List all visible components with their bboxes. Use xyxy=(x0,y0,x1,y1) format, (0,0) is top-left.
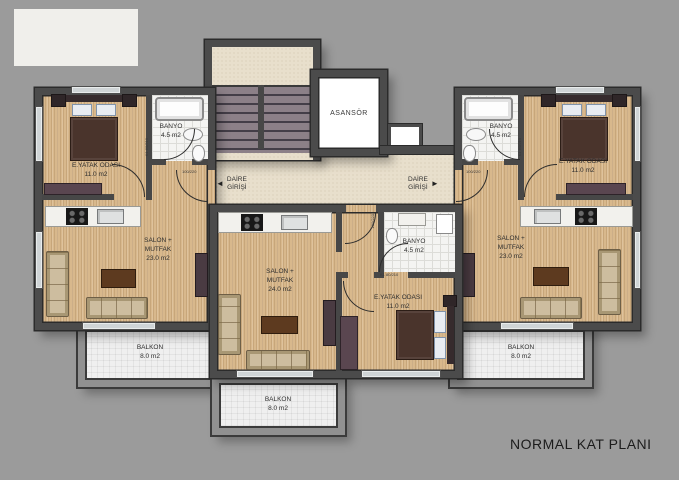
bath-sink xyxy=(466,128,486,141)
sofa xyxy=(218,294,241,355)
room-label-right-living: SALON +MUTFAK23.0 m2 xyxy=(497,235,525,261)
bed-pillow xyxy=(96,104,116,116)
bathtub xyxy=(464,97,513,121)
door-size-label: 100/220 xyxy=(466,169,480,174)
room-label-center-bedroom: E.YATAK ODASI11.0 m2 xyxy=(374,294,422,312)
balcony-door xyxy=(82,322,156,330)
room-label-center-living: SALON +MUTFAK24.0 m2 xyxy=(266,268,294,294)
center-entry-opening xyxy=(346,205,376,212)
bed-pillow xyxy=(72,104,92,116)
window xyxy=(71,86,121,94)
room-label-left-balcony: BALKON8.0 m2 xyxy=(137,344,163,362)
bed-pillow xyxy=(562,104,582,116)
room-label-left-bathroom: BANYO4.5 m2 xyxy=(160,123,183,141)
window xyxy=(361,370,441,378)
center-wall-seg-a xyxy=(336,272,348,278)
bed-blanket xyxy=(560,117,608,161)
center-vestibule-wall xyxy=(336,212,342,252)
elevator: ASANSÖR xyxy=(311,70,387,156)
toilet xyxy=(192,145,205,162)
stove xyxy=(241,214,263,231)
kitchen-sink xyxy=(534,209,561,224)
sofa xyxy=(46,251,69,317)
entrance-label-right: DAİREGİRİŞİ ► xyxy=(408,176,439,192)
dresser xyxy=(44,183,102,195)
window xyxy=(634,231,641,289)
right-bath-wall-a xyxy=(504,159,524,165)
nightstand xyxy=(123,95,136,106)
left-entry-opening xyxy=(208,170,215,204)
sofa xyxy=(246,350,310,370)
tv-unit xyxy=(195,253,208,297)
bed-headboard xyxy=(66,95,122,102)
nightstand xyxy=(52,95,65,106)
balcony-door xyxy=(500,322,574,330)
logo-placeholder xyxy=(14,9,138,66)
door-size-label: K1 80/210 xyxy=(144,138,149,156)
sofa xyxy=(520,297,582,319)
balcony-door xyxy=(236,370,314,378)
room-label-center-bathroom: BANYO4.5 m2 xyxy=(403,238,426,256)
sofa xyxy=(86,297,148,319)
hall-top-wall xyxy=(380,146,458,154)
coffee-table xyxy=(101,269,136,288)
bathtub xyxy=(155,97,204,121)
door-size-label: 100/220 xyxy=(182,169,196,174)
window xyxy=(555,86,605,94)
arrow-right-icon: ► xyxy=(431,179,439,189)
window xyxy=(35,106,43,162)
window xyxy=(634,106,641,162)
kitchen-counter xyxy=(218,212,332,233)
stair-divider xyxy=(258,85,264,149)
dresser xyxy=(566,183,626,195)
bed xyxy=(66,95,122,161)
tv-unit xyxy=(323,300,336,346)
sofa xyxy=(598,249,621,315)
kitchen-sink xyxy=(281,215,308,230)
door-size-label: K1 80/210 xyxy=(517,138,522,156)
bed-headboard xyxy=(556,95,612,102)
toilet xyxy=(463,145,476,162)
entrance-label-left: ◄ DAİREGİRİŞİ xyxy=(216,176,247,192)
shower xyxy=(436,214,453,234)
plan-title: NORMAL KAT PLANI xyxy=(510,436,652,452)
door-size-label: K1 80/210 xyxy=(380,272,398,277)
bed-blanket xyxy=(70,117,118,161)
nightstand xyxy=(444,296,456,306)
plan-stage: ASANSÖR xyxy=(0,0,679,480)
room-label-left-bedroom: E.YATAK ODASI11.0 m2 xyxy=(72,162,120,180)
elevator-label: ASANSÖR xyxy=(330,110,368,117)
kitchen-sink xyxy=(97,209,124,224)
bath-counter xyxy=(398,213,426,226)
wardrobe xyxy=(340,316,358,370)
bed-headboard xyxy=(447,306,454,364)
room-label-right-bedroom: E.YATAK ODASI11.0 m2 xyxy=(559,158,607,176)
window xyxy=(35,231,43,289)
coffee-table xyxy=(261,316,298,334)
arrow-left-icon: ◄ xyxy=(216,179,224,189)
tv-unit xyxy=(462,253,475,297)
door-size-label: 100/220 xyxy=(370,214,375,228)
kitchen-counter xyxy=(45,206,141,227)
center-wall-seg-c xyxy=(408,272,455,278)
room-label-center-balcony: BALKON8.0 m2 xyxy=(265,396,291,414)
nightstand xyxy=(613,95,626,106)
stove xyxy=(575,208,597,225)
left-bath-wall-a xyxy=(146,159,166,165)
stove xyxy=(66,208,88,225)
bed xyxy=(394,306,454,364)
bed xyxy=(556,95,612,161)
room-label-left-living: SALON +MUTFAK23.0 m2 xyxy=(144,237,172,263)
bed-pillow xyxy=(434,337,446,359)
coffee-table xyxy=(533,267,569,286)
toilet xyxy=(386,228,398,244)
room-label-right-bathroom: BANYO4.5 m2 xyxy=(490,123,513,141)
room-label-right-balcony: BALKON8.0 m2 xyxy=(508,344,534,362)
bed-pillow xyxy=(586,104,606,116)
bed-blanket xyxy=(396,310,434,360)
nightstand xyxy=(542,95,555,106)
bed-pillow xyxy=(434,311,446,333)
